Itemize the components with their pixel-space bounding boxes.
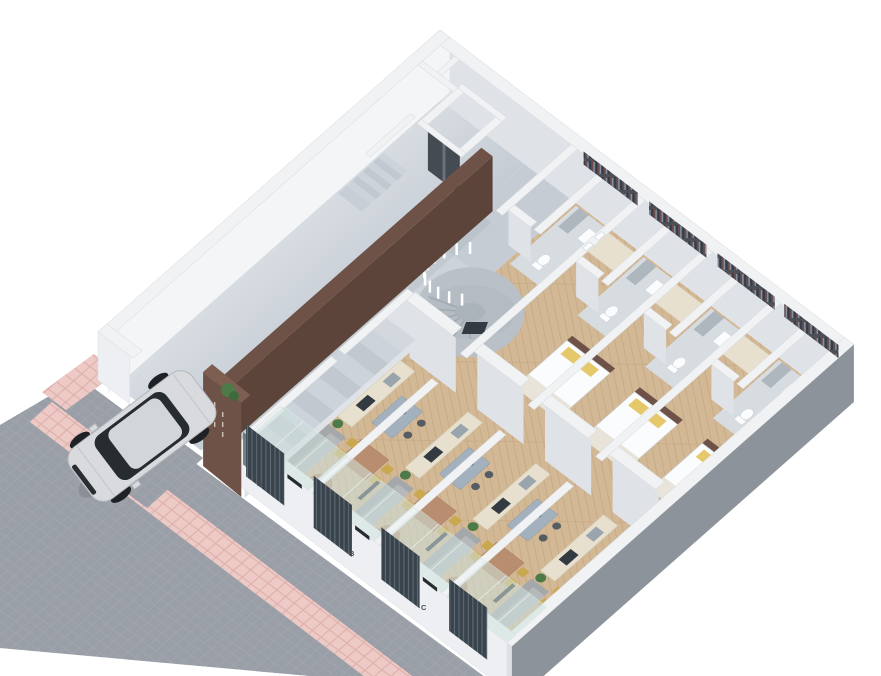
unit-label-a: A [257,479,263,488]
unit-label-c: C [421,603,427,612]
isometric-floorplan-render: A B C [0,0,881,676]
unit-label-b: B [349,549,355,558]
floorplan-svg: A B C [0,0,881,676]
